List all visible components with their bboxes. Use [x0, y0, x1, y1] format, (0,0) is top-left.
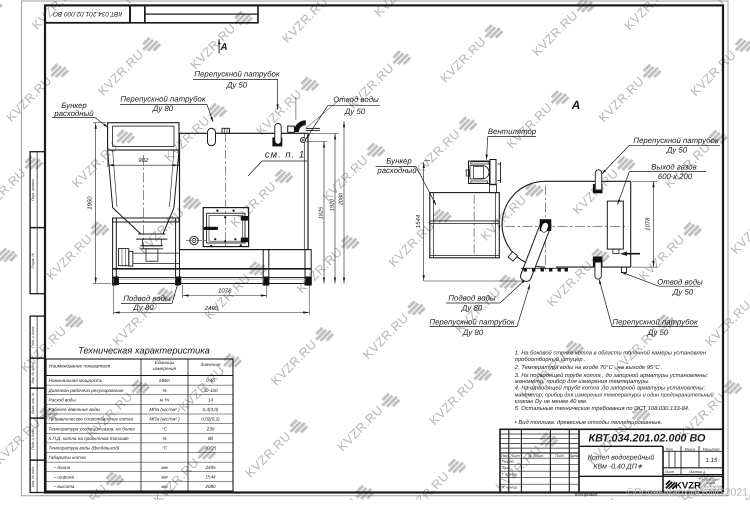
- svg-text:Ду 80: Ду 80: [152, 104, 174, 113]
- svg-text:Температура воды (Вход/выход): Температура воды (Вход/выход): [49, 446, 120, 451]
- svg-text:Лист: Лист: [509, 454, 519, 458]
- svg-text:14: 14: [208, 397, 214, 402]
- svg-text:Перепускной патрубок: Перепускной патрубок: [612, 318, 697, 327]
- svg-text:Ду 50: Ду 50: [647, 328, 669, 337]
- svg-text:©ПолныйархивЪMG2021: ©ПолныйархивЪMG2021: [626, 488, 748, 499]
- svg-text:2080: 2080: [204, 484, 216, 489]
- svg-text:4. На отводящей трубе котла ,: 4. На отводящей трубе котла ,до запорной…: [515, 385, 706, 392]
- svg-text:Значение: Значение: [200, 362, 221, 367]
- svg-text:Ду 50: Ду 50: [666, 146, 688, 155]
- svg-text:Подвод воды: Подвод воды: [123, 294, 171, 303]
- svg-text:К.П.Д. котла на проектном топл: К.П.Д. котла на проектном топливе: [49, 436, 130, 441]
- svg-text:902: 902: [138, 157, 149, 164]
- svg-text:Ду 50: Ду 50: [344, 107, 366, 116]
- svg-text:Диапазон рабочего регулировани: Диапазон рабочего регулирования: [48, 388, 125, 393]
- svg-text:Ду 50: Ду 50: [226, 81, 248, 90]
- svg-text:Наименование показателя: Наименование показателя: [49, 364, 111, 370]
- svg-text:Подп. и дата: Подп. и дата: [31, 326, 35, 347]
- svg-text:Перепускной патрубок: Перепускной патрубок: [429, 318, 514, 327]
- svg-text:Ду 80: Ду 80: [132, 303, 154, 312]
- svg-text:– ширина: – ширина: [49, 474, 75, 479]
- svg-text:1:15: 1:15: [706, 457, 718, 464]
- svg-text:мм: мм: [161, 465, 168, 470]
- svg-text:КВТ.034.201.02.000 ВО: КВТ.034.201.02.000 ВО: [53, 10, 122, 17]
- svg-text:Выход газов: Выход газов: [651, 163, 696, 172]
- svg-text:Масса: Масса: [685, 447, 696, 451]
- svg-text:Инв. № подл.: Инв. № подл.: [31, 466, 35, 487]
- svg-text:Ду 80: Ду 80: [461, 304, 483, 313]
- svg-text:КУЗБАССКИЙ: КУЗБАССКИЙ: [702, 478, 719, 482]
- svg-text:Н. контр.: Н. контр.: [502, 486, 518, 490]
- svg-text:Ду 50: Ду 50: [672, 288, 694, 297]
- svg-text:Температура уходящих газов, не: Температура уходящих газов, не более: [49, 426, 136, 431]
- svg-text:°С: °С: [162, 426, 168, 431]
- svg-text:2495: 2495: [204, 465, 216, 470]
- svg-text:2495: 2495: [204, 305, 219, 312]
- svg-text:Бункер: Бункер: [386, 157, 412, 166]
- svg-text:МПа (кгс/см² ): МПа (кгс/см² ): [149, 407, 180, 412]
- svg-text:30-100: 30-100: [203, 388, 218, 393]
- svg-text:Перепускной патрубок: Перепускной патрубок: [120, 95, 205, 104]
- svg-text:м ³/ч: м ³/ч: [160, 397, 170, 402]
- svg-text:Подп. и дата: Подп. и дата: [31, 428, 35, 449]
- svg-text:манометр, прибор для измерени: манометр, прибор для измерения температу…: [515, 378, 650, 385]
- svg-text:2080: 2080: [339, 192, 345, 206]
- svg-text:мм: мм: [161, 484, 168, 489]
- svg-text:Габариты котла: Габариты котла: [49, 455, 87, 460]
- svg-text:Изм: Изм: [501, 454, 508, 458]
- svg-text:КВТ.034.201.02.000 ВО: КВТ.034.201.02.000 ВО: [589, 433, 707, 445]
- svg-text:%: %: [162, 388, 166, 393]
- svg-text:5. Остальные технические треб: 5. Остальные технические требования по О…: [515, 405, 690, 412]
- svg-text:– длина: – длина: [49, 465, 71, 470]
- svg-text:Т. контр.: Т. контр.: [502, 473, 518, 477]
- svg-text:Разраб.: Разраб.: [502, 460, 515, 464]
- svg-text:Листов 1: Листов 1: [688, 470, 705, 474]
- svg-text:Справ. №: Справ. №: [31, 253, 35, 269]
- svg-text:Масштаб: Масштаб: [703, 447, 721, 451]
- svg-text:КВм -0,40 ДП∗: КВм -0,40 ДП∗: [593, 464, 642, 471]
- svg-text:%: %: [162, 436, 166, 441]
- svg-text:1078: 1078: [645, 217, 652, 231]
- svg-text:Гидравлическое сопротивление к: Гидравлическое сопротивление котла: [49, 417, 134, 422]
- svg-text:манометр, прибор для измерения: манометр, прибор для измерения температу…: [515, 392, 714, 399]
- svg-text:Ду 80: Ду 80: [462, 328, 484, 337]
- svg-text:Перепускной патрубок: Перепускной патрубок: [633, 136, 718, 145]
- svg-text:Подп.: Подп.: [555, 454, 565, 458]
- svg-text:1960: 1960: [87, 196, 94, 210]
- svg-text:Перв. примен.: Перв. примен.: [31, 178, 35, 201]
- svg-text:• Вид топлива: древесные отх: • Вид топлива: древесные отходы пеллетир…: [515, 419, 662, 426]
- svg-text:80: 80: [208, 436, 214, 441]
- svg-text:0,3(3,0): 0,3(3,0): [203, 407, 219, 412]
- svg-text:Лит.: Лит.: [665, 447, 674, 451]
- svg-text:1544: 1544: [415, 214, 422, 228]
- svg-text:А: А: [219, 42, 227, 53]
- svg-text:Взам. инв. №: Взам. инв. №: [31, 392, 35, 413]
- svg-text:Перепускной патрубок: Перепускной патрубок: [194, 70, 279, 79]
- svg-text:Отвод воды: Отвод воды: [657, 278, 703, 287]
- svg-text:1544: 1544: [205, 474, 216, 479]
- svg-text:Пров.: Пров.: [502, 466, 511, 470]
- svg-text:230: 230: [206, 426, 215, 431]
- svg-text:1. На боковой стенке котла в: 1. На боковой стенке котла в области топ…: [515, 350, 707, 357]
- svg-text:МПа (кгс/см² ): МПа (кгс/см² ): [149, 417, 180, 422]
- svg-text:Инв. № дубл.: Инв. № дубл.: [31, 363, 35, 384]
- svg-text:0,40: 0,40: [206, 378, 215, 383]
- svg-text:см. п. 1: см. п. 1: [265, 150, 305, 161]
- svg-text:Номинальная мощность: Номинальная мощность: [49, 378, 103, 383]
- svg-text:МВт: МВт: [159, 378, 170, 383]
- svg-text:Лист: Лист: [664, 470, 674, 474]
- svg-text:1825: 1825: [319, 206, 325, 219]
- svg-text:Подвод воды: Подвод воды: [448, 294, 496, 303]
- svg-text:А: А: [571, 98, 581, 112]
- svg-text:расходный: расходный: [376, 166, 417, 175]
- svg-text:3. На подводящей трубе котла: 3. На подводящей трубе котла , до запорн…: [515, 372, 709, 379]
- svg-text:№ докум.: № докум.: [528, 454, 544, 458]
- svg-text:Единицы: Единицы: [155, 360, 175, 365]
- svg-text:1078: 1078: [218, 288, 232, 295]
- svg-text:Дата: Дата: [568, 454, 578, 458]
- svg-text:– высота: – высота: [49, 484, 75, 489]
- svg-text:2. Температура воды на входе: 2. Температура воды на входе 70°С , на в…: [514, 364, 663, 371]
- svg-text:Копировал: Копировал: [575, 492, 598, 497]
- svg-text:70/95: 70/95: [205, 446, 217, 451]
- svg-text:расходный: расходный: [53, 109, 94, 118]
- svg-text:измерения: измерения: [153, 366, 177, 371]
- svg-text:Расход воды: Расход воды: [49, 397, 77, 402]
- svg-text:Техническая характеристика: Техническая характеристика: [78, 346, 210, 356]
- svg-text:°С: °С: [162, 446, 168, 451]
- svg-text:мм: мм: [161, 474, 168, 479]
- svg-text:клапан Dу не менее 40 мм.: клапан Dу не менее 40 мм.: [515, 398, 588, 405]
- svg-text:0,02(0,2): 0,02(0,2): [201, 417, 220, 422]
- svg-text:600 х 200: 600 х 200: [658, 172, 693, 181]
- svg-text:1920: 1920: [330, 198, 336, 211]
- svg-text:Рабочее давление воды: Рабочее давление воды: [49, 407, 101, 412]
- svg-text:Котел водогрейный: Котел водогрейный: [588, 454, 655, 462]
- svg-text:пробоотборный штуцер .: пробоотборный штуцер .: [515, 356, 586, 363]
- svg-text:Вентилятор: Вентилятор: [488, 127, 537, 136]
